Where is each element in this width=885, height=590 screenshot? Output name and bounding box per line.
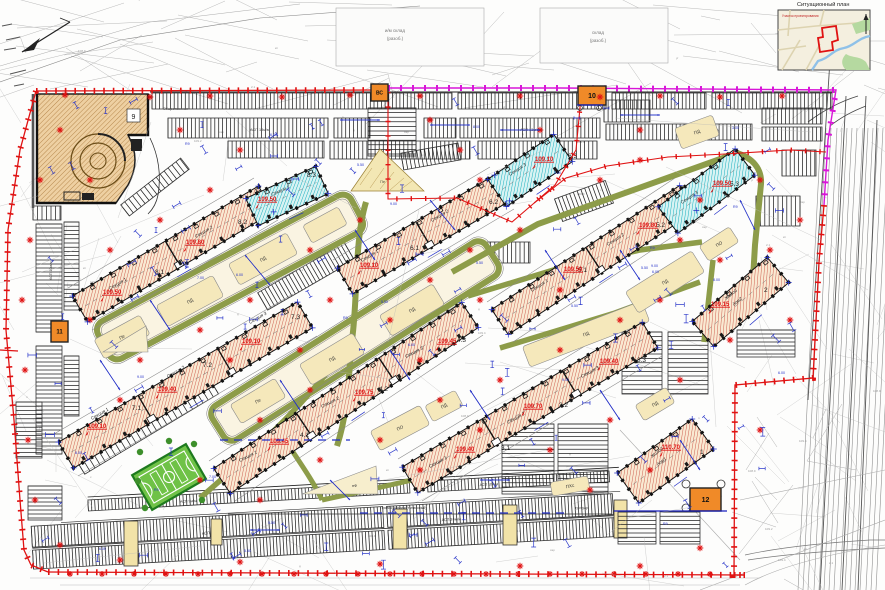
svg-text:8.00: 8.00 bbox=[713, 278, 720, 282]
svg-text:6.2: 6.2 bbox=[489, 199, 498, 206]
svg-text:склад: склад bbox=[592, 30, 604, 35]
svg-text:д: д bbox=[569, 452, 571, 456]
svg-text:8.00: 8.00 bbox=[473, 125, 480, 129]
svg-text:2: 2 bbox=[764, 287, 768, 294]
svg-text:4.1: 4.1 bbox=[300, 432, 309, 439]
svg-text:5.50: 5.50 bbox=[357, 163, 364, 167]
svg-text:108.9: 108.9 bbox=[873, 389, 881, 393]
svg-text:Общественная: Общественная bbox=[163, 107, 188, 111]
svg-text:8.2: 8.2 bbox=[238, 219, 247, 226]
svg-text:9.00: 9.00 bbox=[390, 202, 397, 206]
svg-text:АСП 13м/м: АСП 13м/м bbox=[250, 128, 270, 132]
svg-text:2.1: 2.1 bbox=[251, 85, 256, 89]
svg-text:уг: уг bbox=[676, 56, 679, 60]
svg-text:R9: R9 bbox=[733, 205, 738, 209]
svg-text:7.3: 7.3 bbox=[291, 314, 300, 321]
svg-text:9.00: 9.00 bbox=[651, 264, 658, 268]
svg-text:7.2: 7.2 bbox=[203, 362, 212, 369]
svg-text:109.2: 109.2 bbox=[194, 139, 202, 143]
svg-text:и/м склад: и/м склад bbox=[385, 28, 406, 33]
svg-text:7.00: 7.00 bbox=[197, 276, 204, 280]
svg-text:12: 12 bbox=[702, 497, 710, 504]
svg-text:Пе: Пе bbox=[380, 179, 386, 184]
svg-text:тротуар: тротуар bbox=[575, 506, 588, 510]
svg-text:5.50: 5.50 bbox=[268, 521, 275, 525]
svg-text:4.2: 4.2 bbox=[379, 386, 388, 393]
svg-text:уг: уг bbox=[751, 178, 754, 182]
svg-text:кп: кп bbox=[783, 235, 786, 239]
svg-text:R9: R9 bbox=[663, 522, 668, 526]
svg-text:5.50: 5.50 bbox=[571, 304, 578, 308]
svg-text:11: 11 bbox=[56, 330, 63, 336]
svg-text:3.3: 3.3 bbox=[637, 357, 646, 364]
svg-text:6.00: 6.00 bbox=[236, 273, 243, 277]
svg-text:кп: кп bbox=[386, 468, 389, 472]
svg-text:8.00: 8.00 bbox=[75, 451, 82, 455]
svg-text:108.9: 108.9 bbox=[748, 469, 756, 473]
svg-text:сар: сар bbox=[702, 225, 707, 229]
svg-text:д: д bbox=[299, 564, 301, 568]
svg-text:R9: R9 bbox=[650, 246, 655, 250]
svg-text:R9: R9 bbox=[343, 316, 348, 320]
svg-text:R9: R9 bbox=[185, 142, 190, 146]
svg-text:5.3: 5.3 bbox=[730, 181, 739, 188]
svg-text:кп: кп bbox=[275, 46, 278, 50]
svg-text:6.1: 6.1 bbox=[410, 245, 419, 252]
svg-text:3.00: 3.00 bbox=[554, 171, 561, 175]
svg-text:Привокзальная (тупиковый): Привокзальная (тупиковый) bbox=[380, 506, 427, 510]
svg-text:кп: кп bbox=[83, 266, 86, 270]
svg-text:5.50: 5.50 bbox=[641, 266, 648, 270]
svg-text:R9: R9 bbox=[154, 488, 159, 492]
svg-text:5.50: 5.50 bbox=[476, 261, 483, 265]
svg-text:д: д bbox=[478, 307, 480, 311]
svg-text:6.00: 6.00 bbox=[99, 547, 106, 551]
svg-text:108.9: 108.9 bbox=[461, 414, 469, 418]
svg-text:6.00: 6.00 bbox=[408, 343, 415, 347]
svg-text:6.00: 6.00 bbox=[652, 270, 659, 274]
svg-text:7.00: 7.00 bbox=[209, 475, 216, 479]
svg-text:3.2: 3.2 bbox=[559, 402, 568, 409]
svg-text:Участок проектирования: Участок проектирования bbox=[782, 14, 819, 18]
svg-text:6.00: 6.00 bbox=[778, 371, 785, 375]
svg-text:109.2: 109.2 bbox=[765, 527, 773, 531]
svg-text:(разоб.): (разоб.) bbox=[387, 36, 404, 41]
svg-text:1: 1 bbox=[700, 449, 704, 456]
svg-text:пФ: пФ bbox=[352, 483, 357, 488]
svg-text:9.00: 9.00 bbox=[137, 375, 144, 379]
svg-text:уг: уг bbox=[503, 105, 506, 109]
svg-text:АСП 10м/м: АСП 10м/м bbox=[49, 261, 53, 280]
svg-text:сар: сар bbox=[550, 548, 555, 552]
svg-text:9.00: 9.00 bbox=[562, 378, 569, 382]
svg-text:7.1: 7.1 bbox=[132, 405, 141, 412]
svg-text:2.1: 2.1 bbox=[766, 243, 771, 247]
svg-text:3.00: 3.00 bbox=[732, 126, 739, 130]
svg-text:Ситуационный план: Ситуационный план bbox=[797, 1, 849, 8]
svg-text:сар: сар bbox=[404, 130, 409, 134]
svg-text:2.1: 2.1 bbox=[829, 561, 834, 565]
svg-text:5.50: 5.50 bbox=[244, 549, 251, 553]
svg-text:сар: сар bbox=[800, 200, 805, 204]
svg-text:9: 9 bbox=[132, 114, 136, 121]
svg-text:4.3: 4.3 bbox=[457, 337, 466, 344]
svg-text:д: д bbox=[237, 312, 239, 316]
svg-text:109.4: 109.4 bbox=[478, 331, 486, 335]
svg-text:10: 10 bbox=[588, 93, 596, 100]
svg-text:(разоб.): (разоб.) bbox=[590, 38, 607, 43]
svg-text:сар: сар bbox=[219, 130, 224, 134]
svg-text:5.50: 5.50 bbox=[381, 300, 388, 304]
svg-text:8.3: 8.3 bbox=[307, 172, 316, 179]
svg-text:ВС: ВС bbox=[376, 90, 383, 96]
svg-text:6.00: 6.00 bbox=[270, 133, 277, 137]
svg-text:3.1: 3.1 bbox=[501, 445, 510, 452]
